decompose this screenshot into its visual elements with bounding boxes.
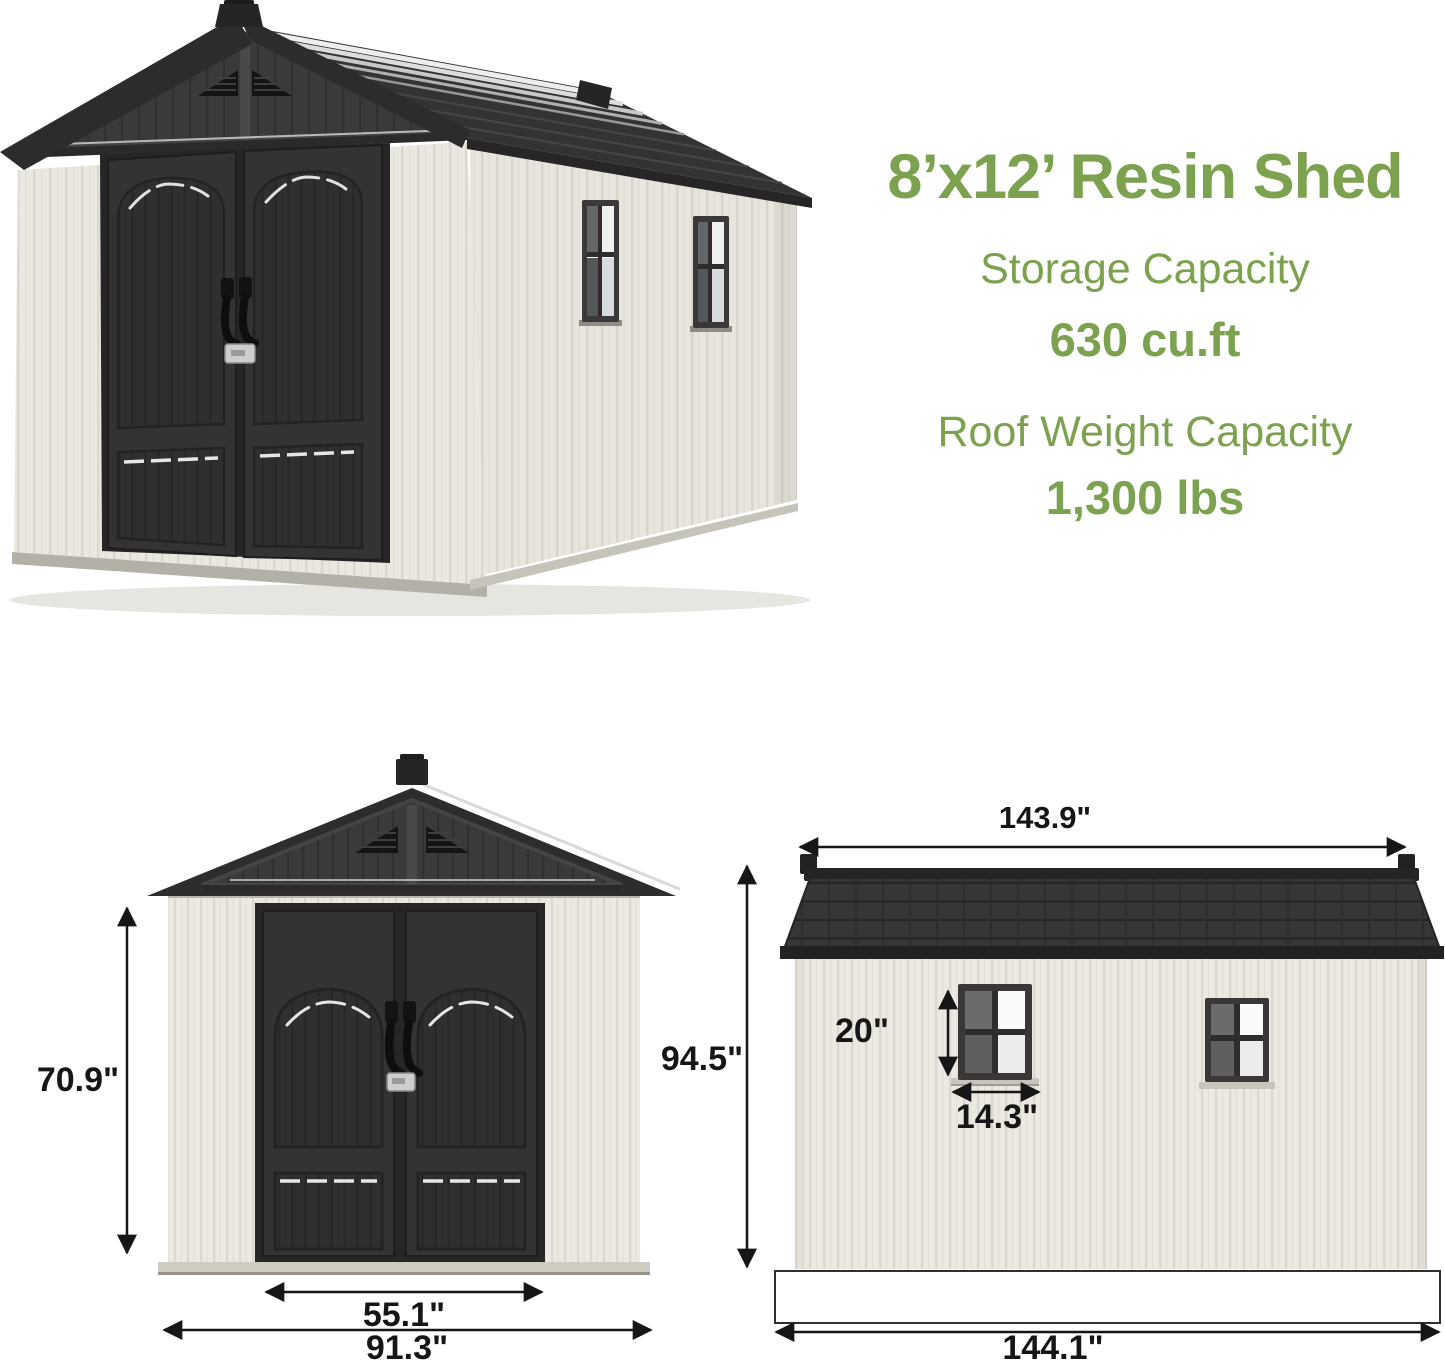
side-window-plain <box>1199 998 1275 1089</box>
dim-window-width-label: 14.3" <box>956 1098 1038 1136</box>
spec-panel: 8’x12’ Resin Shed Storage Capacity 630 c… <box>845 0 1445 600</box>
dim-roof-length: 143.9" <box>800 800 1405 847</box>
side-window-1 <box>579 200 622 326</box>
roof-weight-capacity-value: 1,300 lbs <box>845 473 1445 522</box>
front-base <box>158 1262 650 1275</box>
dim-window-width: 14.3" <box>953 1092 1039 1136</box>
side-wall <box>795 959 1427 1269</box>
roof-side <box>780 854 1444 959</box>
side-elevation-view: 143.9" 94.5" 20" 14.3" 144.1" <box>640 790 1445 1363</box>
storage-capacity-value: 630 cu.ft <box>845 315 1445 364</box>
double-doors-front <box>255 903 545 1262</box>
dim-overall-height-label: 94.5" <box>661 1040 743 1078</box>
side-window-2 <box>690 216 732 332</box>
dim-base-length: 144.1" <box>776 1329 1439 1363</box>
dim-window-height-label: 20" <box>835 1012 889 1050</box>
dim-wall-height: 70.9" <box>37 908 127 1253</box>
roof-weight-capacity-label: Roof Weight Capacity <box>845 410 1445 455</box>
storage-capacity-label: Storage Capacity <box>845 247 1445 292</box>
dim-door-width: 55.1" <box>266 1292 542 1334</box>
shed-product-infographic: 8’x12’ Resin Shed Storage Capacity 630 c… <box>0 0 1445 1363</box>
side-window-dimensioned <box>951 984 1039 1086</box>
dim-base-length-label: 144.1" <box>1002 1329 1103 1363</box>
dim-overall-height: 94.5" <box>661 866 747 1267</box>
product-title: 8’x12’ Resin Shed <box>845 144 1445 210</box>
roof-front <box>147 754 680 897</box>
side-wall-3d <box>470 150 797 578</box>
front-elevation-view: 70.9" 55.1" 91.3" <box>30 745 680 1363</box>
roof-finial-front <box>396 754 428 785</box>
roof-finial-3d <box>215 0 263 27</box>
dim-wall-height-label: 70.9" <box>37 1061 119 1099</box>
dim-base-width: 91.3" <box>164 1329 651 1363</box>
dim-roof-length-label: 143.9" <box>999 800 1091 835</box>
foundation-outline <box>775 1271 1440 1323</box>
shed-3d-view <box>0 0 860 640</box>
dim-base-width-label: 91.3" <box>366 1329 448 1363</box>
double-doors-3d <box>100 143 390 563</box>
